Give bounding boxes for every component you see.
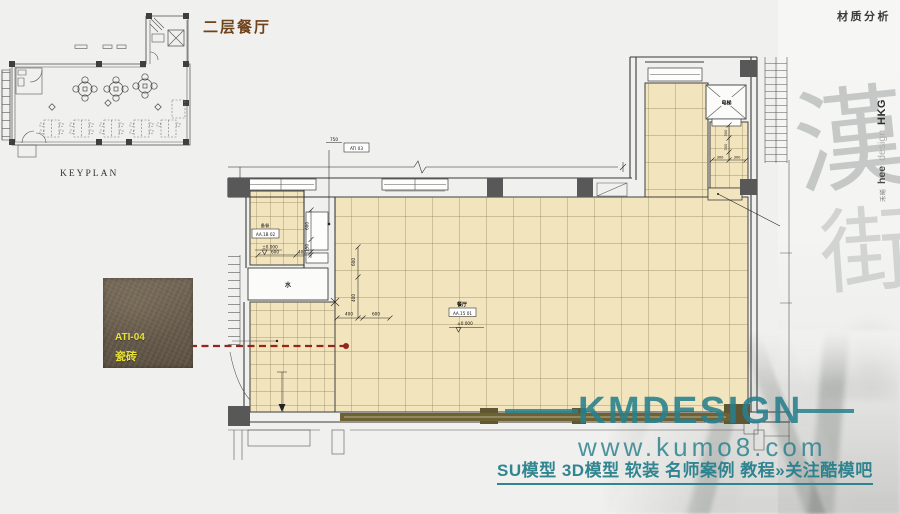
keyplan-caption: KEYPLAN [60,169,118,179]
studio-name-design: design [876,130,888,161]
studio-branding: 禾晞 hee design HKG [876,82,888,202]
keyplan-round-tables [73,74,157,101]
studio-name-cn: 禾晞 [877,189,887,202]
dim-text: 300 [724,129,728,137]
keyplan-square-tables [40,120,180,137]
material-code: ATI-04 [115,332,145,343]
watermark-brand: KMDESIGN [578,390,803,433]
dim-text: 600 [351,258,356,266]
exterior-hatch [228,255,240,345]
dim-text: 400 [298,250,306,255]
material-swatch: ATI-04 瓷砖 [103,278,193,368]
water-label: 水 [285,281,292,289]
dim-text: 300 [734,156,742,160]
window-openings [246,68,702,190]
keyplan-columns [9,13,189,145]
dim-text: 600 [305,222,310,230]
page-title: 二层餐厅 [203,16,271,37]
dining-level: ±0.000 [457,321,473,326]
dim-text: 600 [271,250,279,255]
watermark-tagline: SU模型 3D模型 软装 名师案例 教程»关注酷模吧 [497,456,873,485]
keyplan-markers [49,45,185,118]
presentation-page: 漢 街 [0,0,900,514]
door-frames [306,212,328,263]
elevator-shaft: 电梯 [706,85,746,126]
stair-ladder [765,57,792,303]
dining-label: 餐厅 [456,301,467,308]
water-feature: 水 [248,268,328,300]
dim-text: 300 [724,143,728,151]
section-label: 材质分析 [837,8,891,24]
material-name: 瓷砖 [115,348,137,364]
finish-leader-label: 750 ATI 03 [330,137,369,152]
dim-text: 400 [345,312,353,317]
finish-leader-dim: 750 [330,137,338,142]
dim-text: 600 [372,312,380,317]
watermark-rule-left [505,409,578,413]
elevator-label: 电梯 [721,100,731,107]
finish-leader-code: ATI 03 [350,146,363,151]
pantry-code: AA.1B 02 [256,232,276,237]
studio-name-en: hee [876,166,888,184]
pantry-name: 备餐 [261,222,270,229]
keyplan-drawing [2,13,190,157]
studio-region: HKG [876,99,888,125]
dining-code: AA.15 01 [453,311,472,316]
dim-text: 400 [351,294,356,302]
watermark-rule-right [797,409,854,413]
dim-text: 300 [717,156,725,160]
